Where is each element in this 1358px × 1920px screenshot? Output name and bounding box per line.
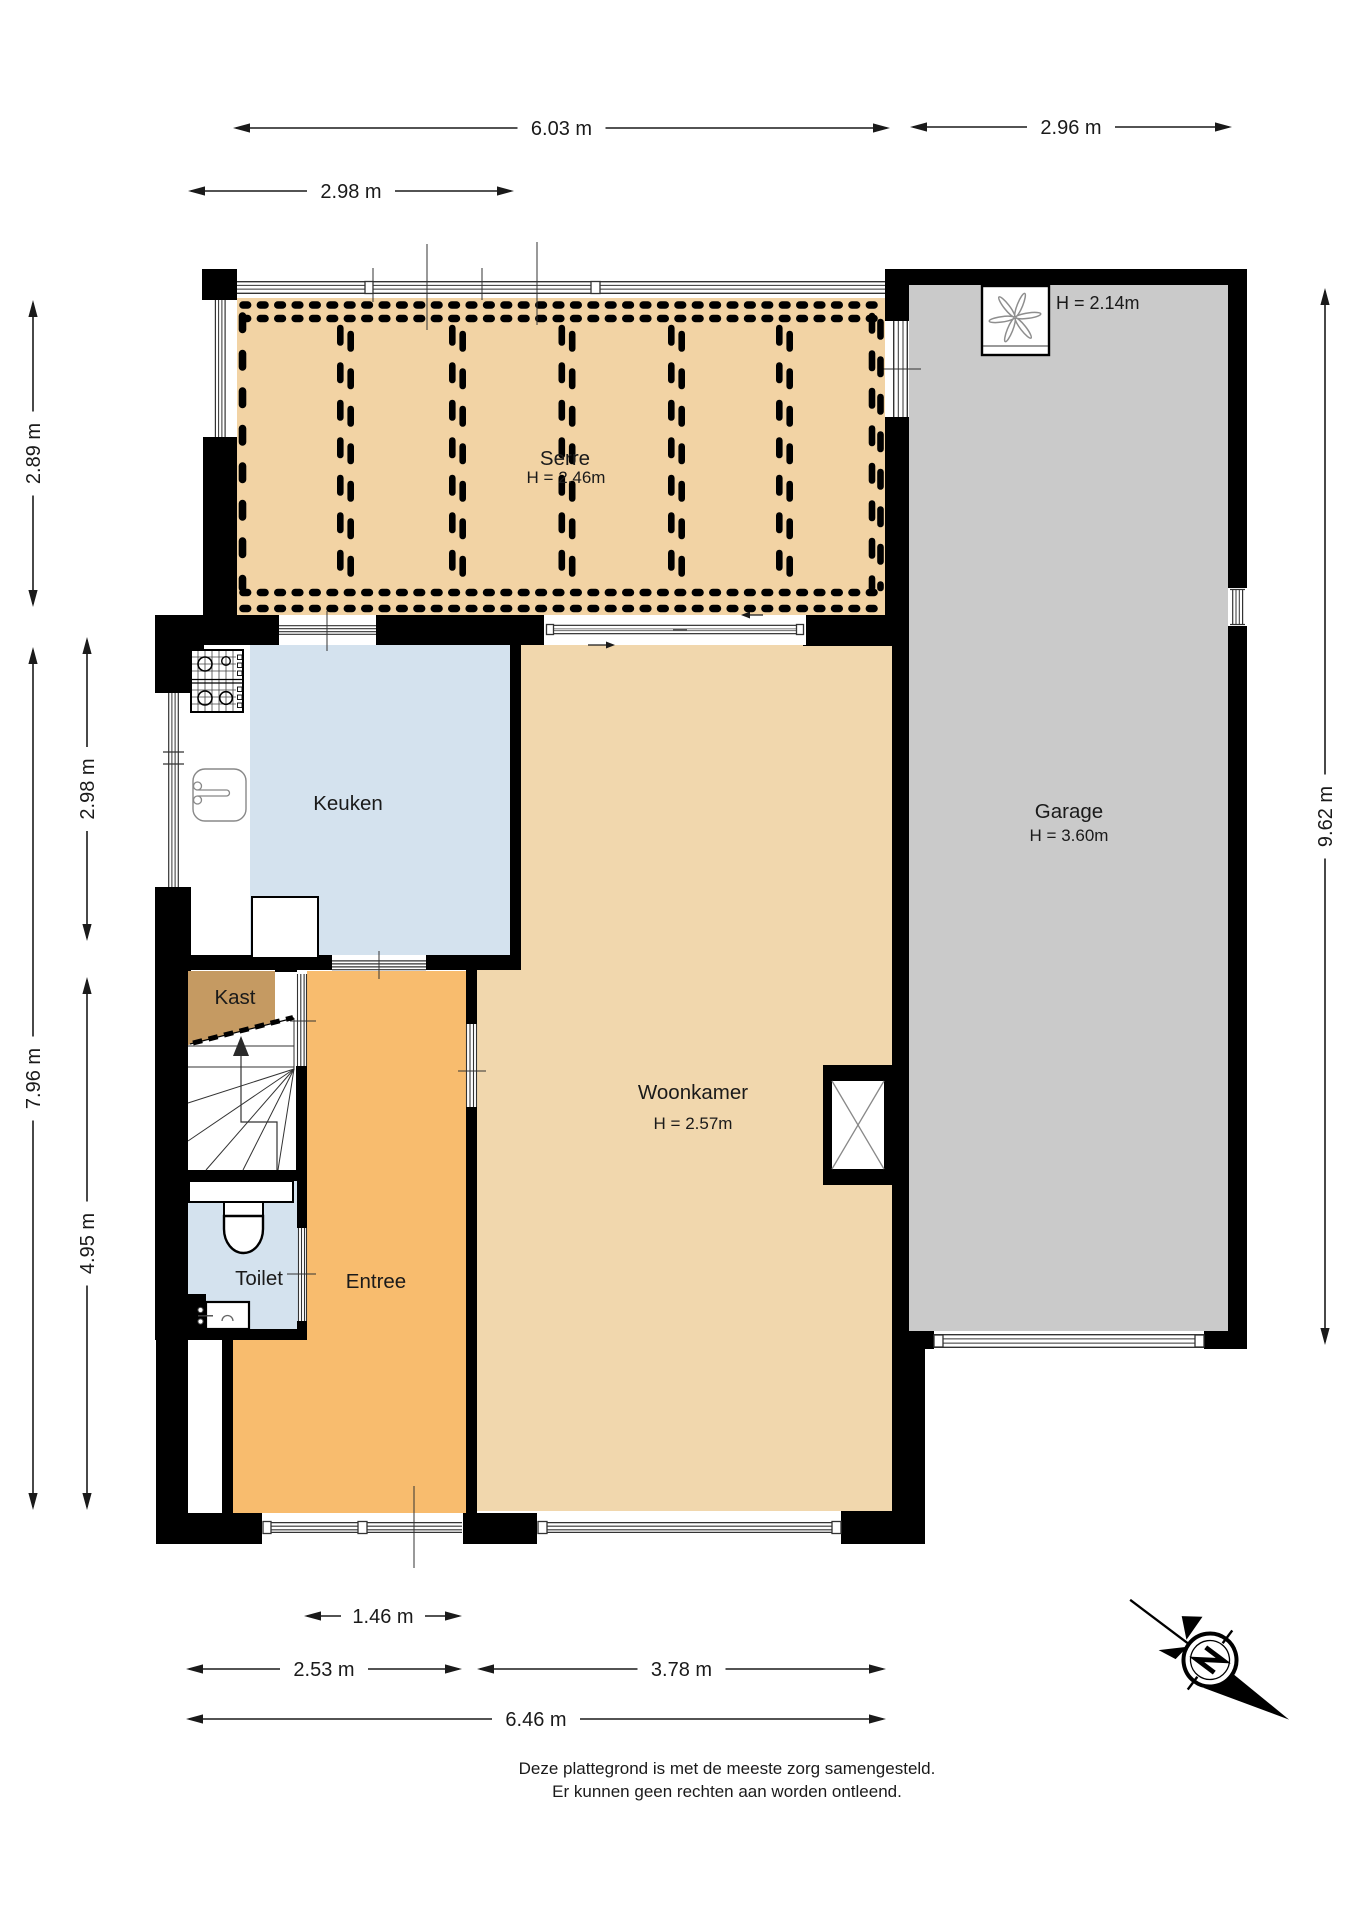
- svg-text:3.78 m: 3.78 m: [651, 1659, 712, 1681]
- svg-text:7.96 m: 7.96 m: [23, 1048, 45, 1109]
- svg-text:Kast: Kast: [214, 986, 255, 1009]
- svg-text:Entree: Entree: [346, 1270, 406, 1293]
- svg-text:Garage: Garage: [1035, 800, 1103, 823]
- svg-text:H = 3.60m: H = 3.60m: [1030, 826, 1109, 845]
- svg-text:Er kunnen geen rechten aan wor: Er kunnen geen rechten aan worden ontlee…: [552, 1782, 902, 1801]
- svg-text:2.98 m: 2.98 m: [320, 181, 381, 203]
- svg-text:6.46 m: 6.46 m: [505, 1709, 566, 1731]
- svg-text:Keuken: Keuken: [313, 792, 383, 815]
- svg-text:H = 2.57m: H = 2.57m: [654, 1114, 733, 1133]
- svg-text:1.46 m: 1.46 m: [352, 1606, 413, 1628]
- svg-text:9.62 m: 9.62 m: [1315, 786, 1337, 847]
- svg-text:2.96 m: 2.96 m: [1040, 117, 1101, 139]
- svg-text:6.03 m: 6.03 m: [531, 118, 592, 140]
- svg-text:Woonkamer: Woonkamer: [638, 1081, 748, 1104]
- svg-text:Serre: Serre: [540, 447, 590, 470]
- svg-text:4.95 m: 4.95 m: [77, 1213, 99, 1274]
- svg-text:2.53 m: 2.53 m: [293, 1659, 354, 1681]
- svg-text:Deze plattegrond is met de mee: Deze plattegrond is met de meeste zorg s…: [519, 1759, 936, 1778]
- svg-text:2.89 m: 2.89 m: [23, 423, 45, 484]
- svg-text:H = 2.14m: H = 2.14m: [1056, 293, 1140, 313]
- svg-text:Toilet: Toilet: [235, 1267, 283, 1290]
- svg-text:H = 2.46m: H = 2.46m: [527, 468, 606, 487]
- svg-text:2.98 m: 2.98 m: [77, 758, 99, 819]
